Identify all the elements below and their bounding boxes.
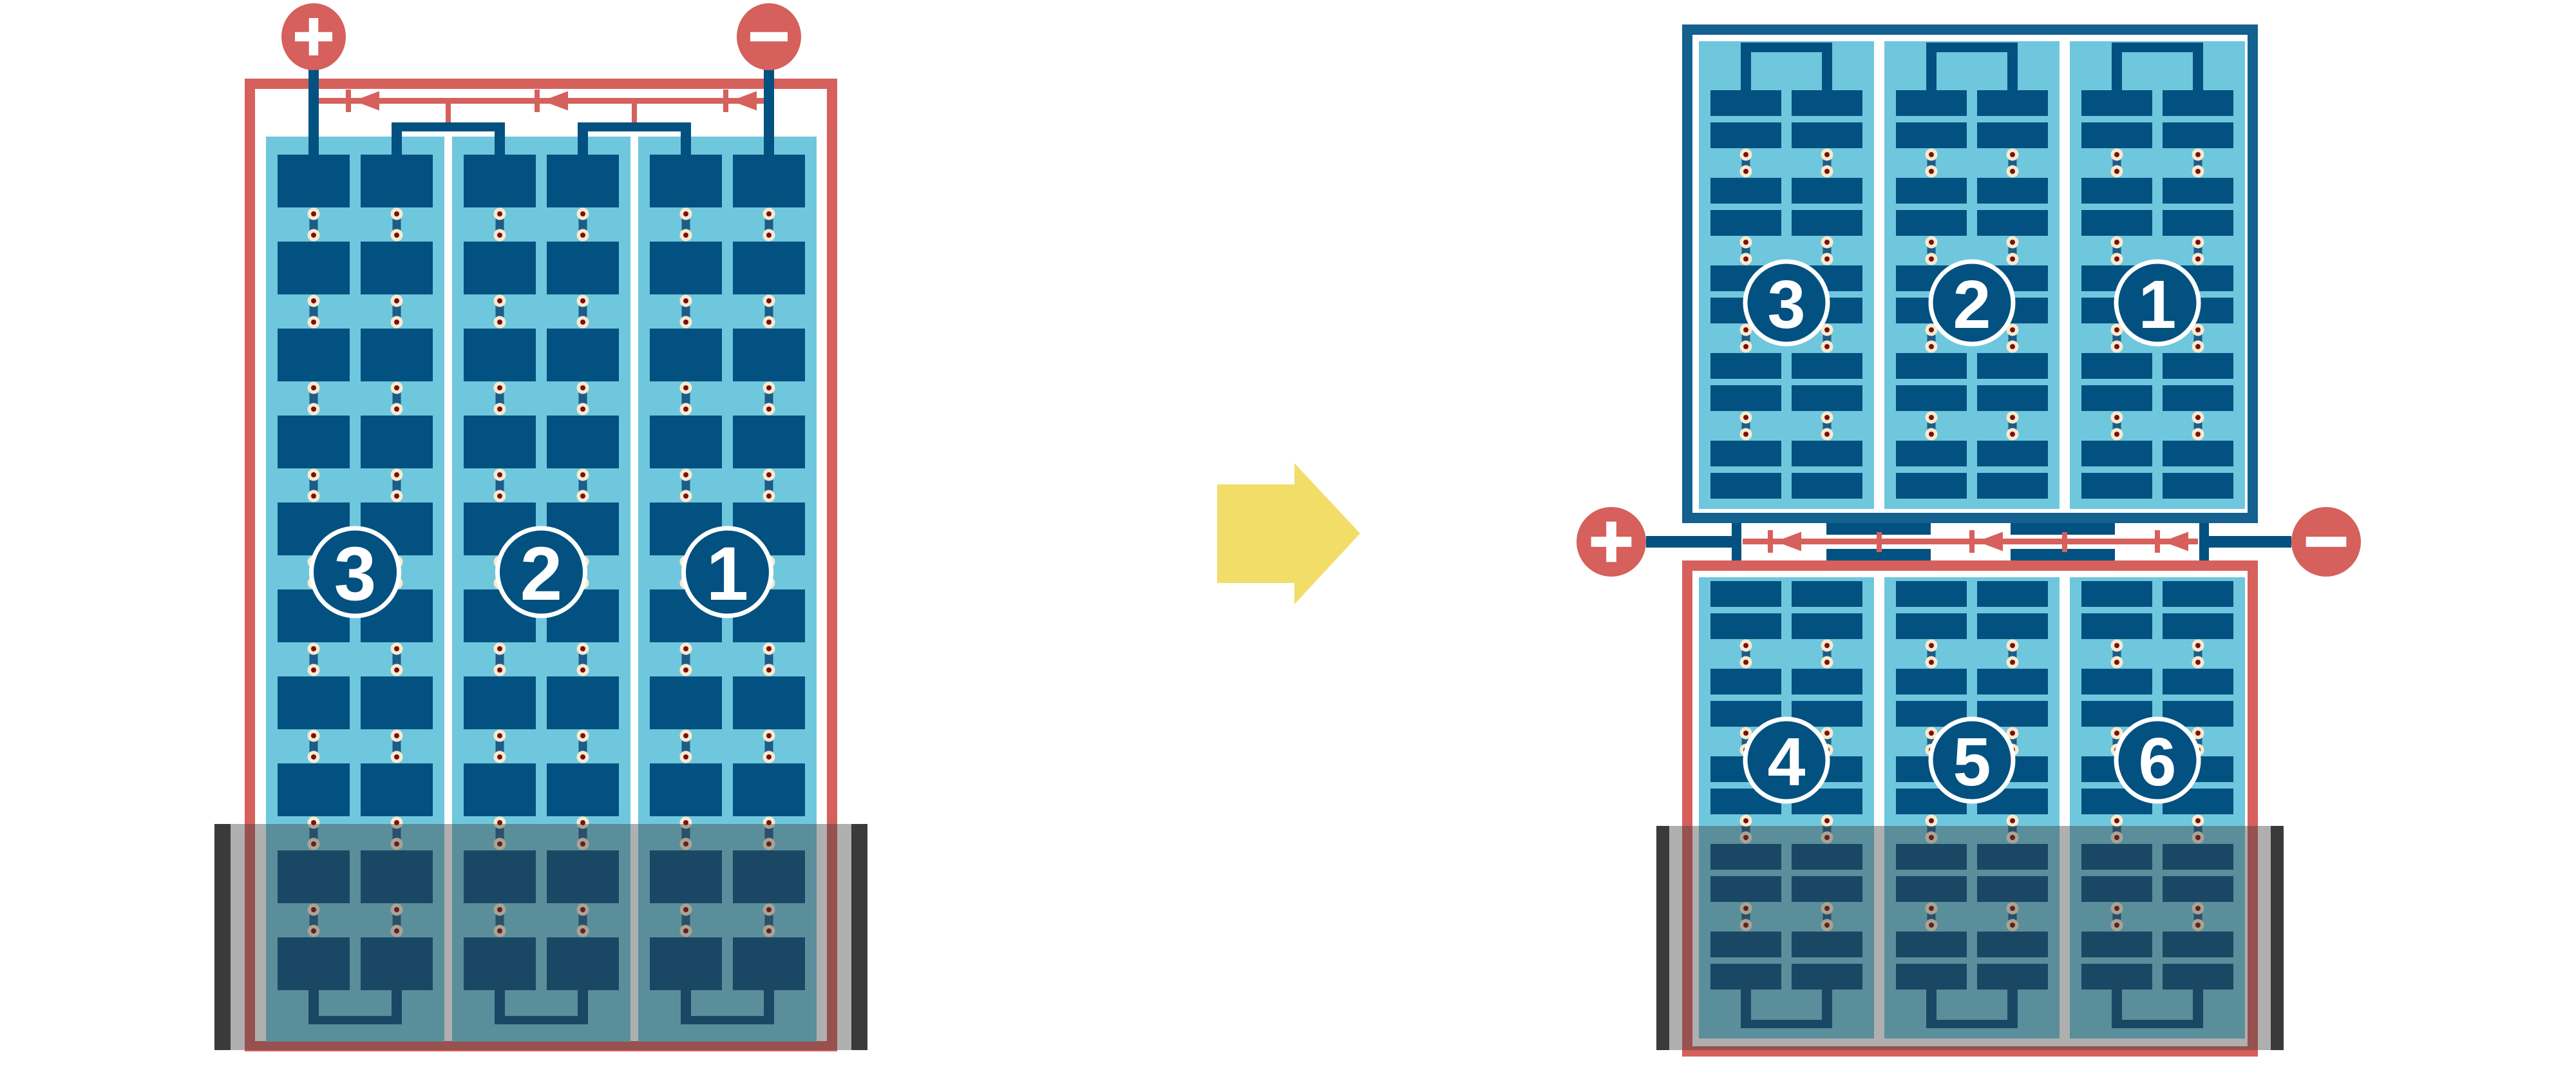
bridge-leg [2007, 52, 2018, 91]
solar-cell [1792, 473, 1862, 499]
mounting-rail-right [851, 824, 867, 1050]
solder-dot-core [683, 385, 688, 390]
solder-dot-core [2114, 818, 2119, 823]
solder-dot-core [580, 493, 585, 499]
solder-dot-core [311, 472, 316, 477]
solder-dot-core [1824, 432, 1830, 437]
solder-dot-core [1929, 818, 1934, 823]
solar-cell [2081, 122, 2152, 148]
solder-dot-core [2010, 169, 2015, 174]
string-number: 3 [334, 531, 377, 617]
solder-dot-core [1743, 169, 1748, 174]
solar-cell [650, 763, 722, 816]
solar-cell [547, 155, 619, 207]
solder-dot-core [683, 733, 688, 738]
solder-dot-core [394, 211, 399, 216]
solar-cell [278, 763, 350, 816]
solder-dot-core [1743, 660, 1748, 665]
solder-dot-core [311, 211, 316, 216]
string-bridge [1926, 43, 2018, 52]
mounting-rail-right [2271, 826, 2284, 1050]
solar-cell [2081, 581, 2152, 607]
right-top-panel: 321 [1687, 30, 2253, 518]
solder-dot-core [1743, 240, 1748, 245]
terminal-lead [764, 67, 774, 157]
solder-dot-core [1824, 415, 1830, 420]
solar-cell [650, 416, 722, 468]
solder-dot-core [1929, 256, 1934, 262]
bridge-leg [392, 131, 402, 156]
solder-dot-core [497, 385, 502, 390]
solder-dot-core [497, 211, 502, 216]
bridge-leg [1926, 52, 1937, 91]
solder-dot-core [580, 211, 585, 216]
solder-dot-core [2010, 344, 2015, 349]
solar-cell [650, 329, 722, 381]
solar-cell [278, 416, 350, 468]
solar-cell [1710, 385, 1781, 411]
solder-dot-core [1743, 327, 1748, 332]
solder-dot-core [580, 646, 585, 651]
solder-dot-core [2195, 432, 2201, 437]
solder-dot-core [683, 407, 688, 412]
solder-dot-core [1824, 256, 1830, 262]
negative-terminal-icon [2291, 507, 2361, 577]
solder-dot-core [580, 667, 585, 673]
solder-dot-core [2195, 240, 2201, 245]
diode-arrow [1776, 532, 1801, 551]
solder-dot-core [2010, 327, 2015, 332]
solder-dot-core [766, 320, 772, 325]
solder-dot-core [394, 754, 399, 760]
solar-cell [733, 676, 805, 729]
solder-dot-core [766, 646, 772, 651]
solder-dot-core [1824, 660, 1830, 665]
string-number: 4 [1768, 724, 1806, 800]
solder-dot-core [2195, 415, 2201, 420]
terminal-lead [1646, 536, 1741, 548]
diode-cathode-bar [346, 90, 351, 112]
string-number: 5 [1953, 724, 1991, 800]
solar-cell [1977, 122, 2048, 148]
bridge-leg [1741, 52, 1751, 91]
solder-dot-core [1824, 152, 1830, 157]
solder-dot-core [580, 733, 585, 738]
diagram-canvas: 321321456 [0, 0, 2576, 1069]
solder-dot-core [1824, 344, 1830, 349]
solder-dot-core [766, 472, 772, 477]
solder-dot-core [2114, 344, 2119, 349]
solder-dot-core [2195, 327, 2201, 332]
solar-cell [1977, 581, 2048, 607]
string-bridge [2112, 43, 2203, 52]
solar-cell [733, 329, 805, 381]
bypass-diode-icon [1768, 530, 1801, 553]
solar-cell [2163, 122, 2233, 148]
solar-cell [1977, 178, 2048, 204]
solar-cell [1792, 613, 1862, 639]
solder-dot-core [394, 298, 399, 303]
solar-cell [1710, 90, 1781, 116]
solar-cell [2081, 613, 2152, 639]
solar-cell [464, 763, 536, 816]
string-number: 1 [2139, 267, 2177, 343]
solar-cell [547, 763, 619, 816]
solder-dot-core [766, 385, 772, 390]
string-number: 3 [1768, 267, 1806, 343]
solder-dot-core [1824, 643, 1830, 648]
terminal-lead [308, 67, 319, 157]
solder-dot-core [2195, 344, 2201, 349]
solder-dot-core [2114, 731, 2119, 736]
solar-cell [464, 416, 536, 468]
solar-cell [361, 329, 433, 381]
solder-dot-core [1824, 240, 1830, 245]
frame-link [2199, 523, 2209, 560]
solder-dot-core [2195, 169, 2201, 174]
solar-cell [733, 416, 805, 468]
solder-dot-core [766, 754, 772, 760]
mounting-rail-left [214, 824, 231, 1050]
solar-cell [1977, 353, 2048, 379]
solder-dot-core [766, 493, 772, 499]
solder-dot-core [497, 320, 502, 325]
solar-cell [464, 242, 536, 294]
solar-cell [2163, 669, 2233, 694]
solder-dot-core [766, 298, 772, 303]
solder-dot-core [497, 733, 502, 738]
solar-cell [464, 676, 536, 729]
solder-dot-core [1929, 240, 1934, 245]
solar-string-diagram: 321321456 [0, 0, 2576, 1069]
solar-cell [1792, 90, 1862, 116]
diode-bus-line [319, 98, 764, 104]
solder-dot-core [2114, 643, 2119, 648]
solar-cell [1896, 581, 1967, 607]
solder-dot-core [1929, 731, 1934, 736]
solder-dot-core [394, 667, 399, 673]
diode-cathode-bar [2155, 530, 2160, 553]
string-number: 2 [1953, 267, 1991, 343]
solar-cell [278, 676, 350, 729]
solar-cell [1792, 210, 1862, 236]
solar-cell [650, 155, 722, 207]
solder-dot-core [1929, 152, 1934, 157]
solar-cell [2081, 210, 2152, 236]
solar-cell [733, 242, 805, 294]
solar-cell [1977, 613, 2048, 639]
solar-cell [1896, 353, 1967, 379]
solar-cell [1792, 441, 1862, 466]
solder-dot-core [1743, 818, 1748, 823]
diode-arrow [542, 91, 568, 111]
solder-dot-core [2010, 643, 2015, 648]
solar-cell [2163, 441, 2233, 466]
solder-dot-core [580, 472, 585, 477]
solar-cell [650, 676, 722, 729]
solder-dot-core [683, 754, 688, 760]
solder-dot-core [2114, 432, 2119, 437]
solder-dot-core [1929, 643, 1934, 648]
solder-dot-core [497, 472, 502, 477]
solar-cell [278, 242, 350, 294]
solder-dot-core [683, 211, 688, 216]
solder-dot-core [766, 211, 772, 216]
solder-dot-core [683, 233, 688, 238]
solder-dot-core [2010, 731, 2015, 736]
solar-cell [2163, 473, 2233, 499]
solar-cell [1977, 441, 2048, 466]
solder-dot-core [311, 320, 316, 325]
solder-dot-core [311, 667, 316, 673]
solar-cell [1710, 669, 1781, 694]
shade-overlay-right [1656, 826, 2284, 1050]
solar-cell [1896, 669, 1967, 694]
solder-dot-core [1743, 152, 1748, 157]
solder-dot-core [1824, 818, 1830, 823]
string-number-badge: 2 [1931, 262, 2013, 344]
solar-cell [1977, 669, 2048, 694]
solar-cell [547, 329, 619, 381]
bridge-leg [2112, 52, 2122, 91]
solar-cell [1710, 473, 1781, 499]
solder-dot-core [2114, 327, 2119, 332]
solar-cell [1977, 385, 2048, 411]
solder-dot-core [766, 733, 772, 738]
solar-cell [1977, 210, 2048, 236]
solder-dot-core [580, 298, 585, 303]
solar-cell [361, 416, 433, 468]
solder-dot-core [394, 472, 399, 477]
solder-dot-core [683, 493, 688, 499]
bridge-leg [495, 131, 505, 156]
solder-dot-core [1743, 432, 1748, 437]
string-number-badge: 1 [2116, 262, 2199, 344]
positive-terminal-icon [1577, 507, 1646, 577]
solder-dot-core [580, 385, 585, 390]
solder-dot-core [1743, 415, 1748, 420]
bridge-leg [2193, 52, 2203, 91]
solder-dot-core [311, 754, 316, 760]
bus-stub [1877, 532, 1882, 552]
solder-dot-core [2114, 415, 2119, 420]
solar-cell [1792, 353, 1862, 379]
string-number: 2 [520, 531, 563, 617]
solar-cell [2081, 353, 2152, 379]
solder-dot-core [311, 233, 316, 238]
solder-dot-core [580, 320, 585, 325]
solder-dot-core [2010, 660, 2015, 665]
solar-cell [1896, 122, 1967, 148]
solder-dot-core [2010, 152, 2015, 157]
bus-stub [2062, 532, 2067, 552]
solder-dot-core [394, 646, 399, 651]
bypass-diode-icon [2155, 530, 2188, 553]
bypass-diode-icon [723, 90, 757, 112]
solder-dot-core [311, 733, 316, 738]
solder-dot-core [2010, 240, 2015, 245]
solder-dot-core [580, 407, 585, 412]
solder-dot-core [766, 667, 772, 673]
solder-dot-core [1743, 344, 1748, 349]
negative-terminal-icon [737, 3, 801, 70]
solder-dot-core [1824, 731, 1830, 736]
solder-dot-core [683, 298, 688, 303]
solar-cell [2081, 473, 2152, 499]
bus-stub [632, 104, 637, 124]
solder-dot-core [1929, 660, 1934, 665]
solder-dot-core [311, 493, 316, 499]
solar-cell [733, 763, 805, 816]
solder-dot-core [2195, 731, 2201, 736]
solder-dot-core [2195, 152, 2201, 157]
string-number-badge: 3 [312, 528, 399, 617]
diode-arrow [731, 91, 757, 111]
solder-dot-core [2195, 643, 2201, 648]
string-bridge [392, 122, 505, 131]
solder-dot-core [766, 233, 772, 238]
solar-cell [2163, 210, 2233, 236]
solar-cell [1896, 385, 1967, 411]
diode-arrow [1977, 532, 2003, 551]
solar-cell [2081, 385, 2152, 411]
solar-cell [1710, 122, 1781, 148]
solar-cell [2163, 353, 2233, 379]
solder-dot-core [1929, 432, 1934, 437]
solar-cell [1710, 210, 1781, 236]
terminal-lead [2209, 536, 2291, 548]
solar-cell [547, 416, 619, 468]
solar-cell [361, 676, 433, 729]
solar-cell [2081, 441, 2152, 466]
bypass-diode-icon [1969, 530, 2003, 553]
solder-dot-core [683, 472, 688, 477]
string-number-badge: 6 [2116, 719, 2199, 801]
mounting-rail-left [1656, 826, 1669, 1050]
solar-cell [1792, 178, 1862, 204]
solar-cell [2081, 178, 2152, 204]
solder-dot-core [497, 493, 502, 499]
positive-terminal-icon [281, 3, 346, 70]
solder-dot-core [311, 385, 316, 390]
solar-cell [1710, 613, 1781, 639]
solar-cell [464, 155, 536, 207]
solder-dot-core [394, 320, 399, 325]
solar-cell [361, 763, 433, 816]
solar-cell [1896, 178, 1967, 204]
solder-dot-core [311, 298, 316, 303]
solar-cell [278, 155, 350, 207]
solar-cell [1896, 210, 1967, 236]
solder-dot-core [580, 233, 585, 238]
solar-cell [361, 155, 433, 207]
solder-dot-core [1929, 415, 1934, 420]
solder-dot-core [1743, 256, 1748, 262]
diode-cathode-bar [723, 90, 728, 112]
solder-dot-core [1929, 344, 1934, 349]
solar-cell [1896, 473, 1967, 499]
string-bridge [578, 122, 691, 131]
solar-cell [547, 242, 619, 294]
solder-dot-core [2114, 660, 2119, 665]
solder-dot-core [1824, 169, 1830, 174]
string-number: 1 [706, 531, 749, 617]
solar-cell [1792, 669, 1862, 694]
solder-dot-core [683, 646, 688, 651]
solar-cell [650, 242, 722, 294]
solder-dot-core [1824, 327, 1830, 332]
solar-cell [1792, 122, 1862, 148]
string-bridge [1741, 43, 1832, 52]
solar-cell [2163, 581, 2233, 607]
solder-dot-core [683, 667, 688, 673]
solder-dot-core [2195, 256, 2201, 262]
bridge-leg [681, 131, 691, 156]
diode-arrow [2163, 532, 2188, 551]
solder-dot-core [2114, 240, 2119, 245]
terminal-sign-bar [750, 32, 788, 42]
solder-dot-core [1743, 731, 1748, 736]
terminal-sign-bar [1606, 522, 1616, 562]
bypass-diode-icon [346, 90, 379, 112]
solder-dot-core [394, 493, 399, 499]
string-number-badge: 4 [1745, 719, 1828, 801]
solder-dot-core [1743, 643, 1748, 648]
solar-cell [2163, 613, 2233, 639]
bypass-diode-icon [535, 90, 568, 112]
shade-overlay-left [214, 824, 867, 1050]
solder-dot-core [394, 407, 399, 412]
solder-dot-core [311, 407, 316, 412]
solder-dot-core [311, 646, 316, 651]
solar-cell [2081, 669, 2152, 694]
solar-cell [361, 242, 433, 294]
string-number-badge: 3 [1745, 262, 1828, 344]
solder-dot-core [1929, 169, 1934, 174]
solar-cell [1896, 613, 1967, 639]
solar-cell [1710, 353, 1781, 379]
solder-dot-core [2114, 256, 2119, 262]
solar-cell [1792, 581, 1862, 607]
solder-dot-core [497, 298, 502, 303]
solder-dot-core [394, 385, 399, 390]
bridge-leg [1822, 52, 1832, 91]
solder-dot-core [683, 320, 688, 325]
flow-arrow [1217, 463, 1360, 604]
solder-dot-core [2195, 818, 2201, 823]
solder-dot-core [497, 407, 502, 412]
solar-cell [1792, 385, 1862, 411]
solder-dot-core [2114, 169, 2119, 174]
solder-dot-core [2010, 256, 2015, 262]
solar-cell [1710, 178, 1781, 204]
solar-cell [1977, 473, 2048, 499]
bridge-leg [578, 131, 588, 156]
solder-dot-core [766, 407, 772, 412]
solder-dot-core [394, 233, 399, 238]
solder-dot-core [2010, 415, 2015, 420]
solar-cell [1896, 441, 1967, 466]
solar-cell [547, 676, 619, 729]
terminal-sign-bar [309, 18, 319, 55]
solder-dot-core [2010, 818, 2015, 823]
diode-cathode-bar [1969, 530, 1975, 553]
solder-dot-core [2114, 152, 2119, 157]
solder-dot-core [1929, 327, 1934, 332]
solder-dot-core [580, 754, 585, 760]
solar-cell [2163, 90, 2233, 116]
solar-cell [2163, 178, 2233, 204]
